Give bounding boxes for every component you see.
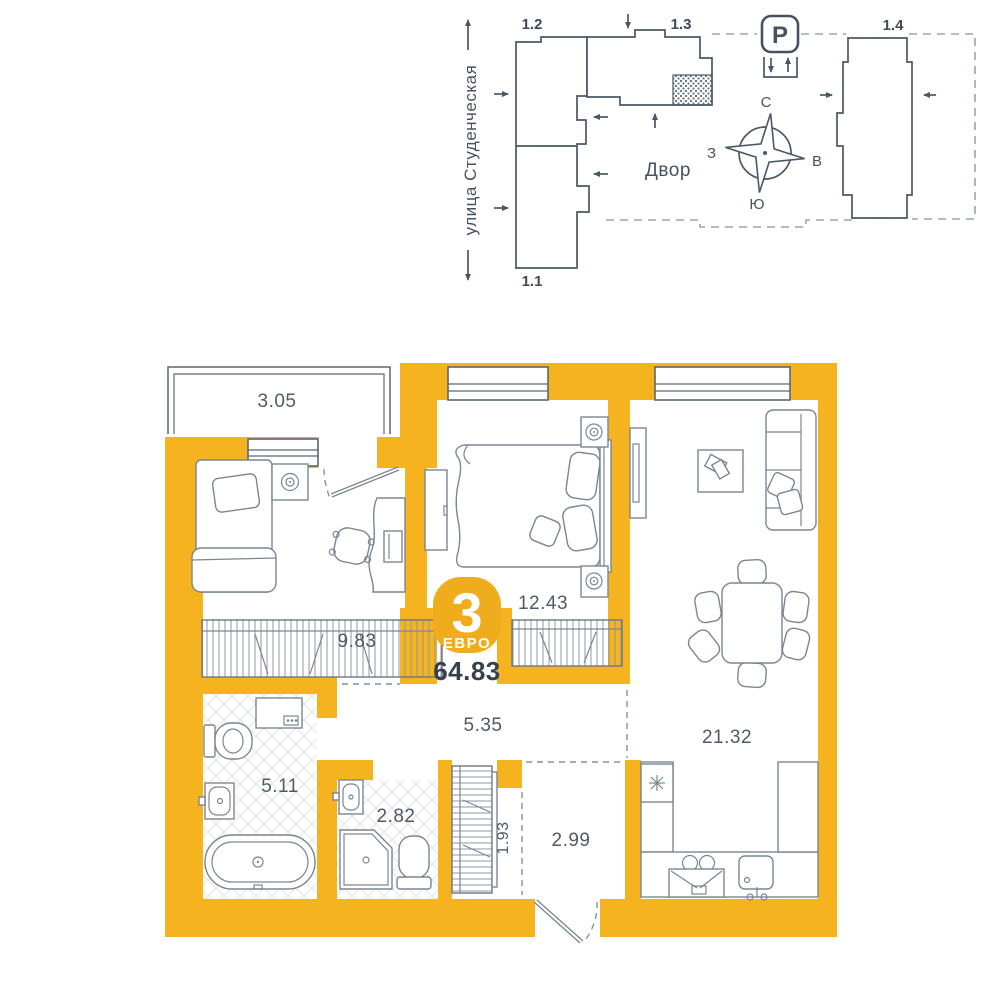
nightstand [581,566,608,597]
badge-layout-type: ЕВРО [443,635,491,652]
floorplan-page: улица Студенческая 1.2 1.1 1.3 1.4 Двор [0,0,1000,1000]
entrance-door [534,900,597,943]
floor-plan: 3.05 9.83 12.43 21.32 5.35 5.11 2.82 1.9… [165,363,837,943]
desk [369,498,405,592]
compass-east-label: В [812,153,822,170]
chair [737,662,767,688]
room-label-balcony: 3.05 [258,391,297,412]
cabinet [425,470,447,550]
room-label-toilet: 2.82 [377,806,416,827]
dining-set [685,559,811,688]
parking-label: P [772,22,788,49]
building-12-label: 1.2 [522,16,543,33]
kitchen-counter [641,762,818,900]
compass-north-label: С [761,94,772,111]
wardrobe [512,620,622,666]
parking-icon: P [762,16,798,77]
compass-west-label: З [707,145,716,162]
balcony-door-opening [318,437,377,468]
current-building-hatch [673,75,712,105]
window [448,367,548,400]
room-label-living-kitchen: 21.32 [702,727,752,748]
room-label-wardrobe: 1.93 [495,821,512,854]
pillow [565,451,601,501]
nightstand [272,464,308,500]
apartment-badge: 3 ЕВРО [433,577,501,653]
chair [782,590,810,623]
window [655,367,790,400]
nightstand [581,417,608,447]
dining-table [722,583,782,663]
fridge-snowflake-icon [649,775,665,791]
room-label-hallway: 5.35 [464,715,503,736]
room-label-bathroom: 5.11 [261,776,299,797]
compass-south-label: Ю [749,196,764,213]
building-14-label: 1.4 [883,17,905,34]
plan-canvas: улица Студенческая 1.2 1.1 1.3 1.4 Двор [0,0,1000,1000]
monitor [384,531,402,562]
headboard [600,440,611,572]
compass-icon: С Ю З В [707,94,822,213]
bathtub [205,835,315,889]
building-14-outline [837,38,912,218]
street-label: улица Студенческая [461,65,480,236]
chair [694,590,723,624]
total-area: 64.83 [433,656,501,686]
room-label-master-bedroom: 12.43 [518,593,568,614]
toilet [397,836,431,889]
bed-single [192,460,276,592]
blanket [192,548,276,592]
pillow [777,489,804,516]
pillow [212,473,260,513]
building-13-label: 1.3 [671,16,692,33]
parking-bracket [764,57,797,77]
sofa [766,410,816,530]
washing-machine [256,698,302,728]
building-11-12-outline [516,37,589,268]
chair [781,627,812,662]
room-label-entry: 2.99 [552,830,591,851]
toilet [204,723,252,759]
chair [737,559,766,584]
oven [669,869,724,897]
coffee-table [698,450,743,492]
wardrobe [452,766,497,893]
courtyard-label: Двор [645,160,691,181]
site-plan: улица Студенческая 1.2 1.1 1.3 1.4 Двор [461,14,975,290]
chair [685,627,722,665]
balcony-door [324,467,399,498]
tv-stand [630,428,646,518]
room-label-bedroom: 9.83 [338,631,377,652]
building-11-label: 1.1 [522,273,543,290]
bed-double [456,440,611,572]
wardrobe [202,620,442,677]
